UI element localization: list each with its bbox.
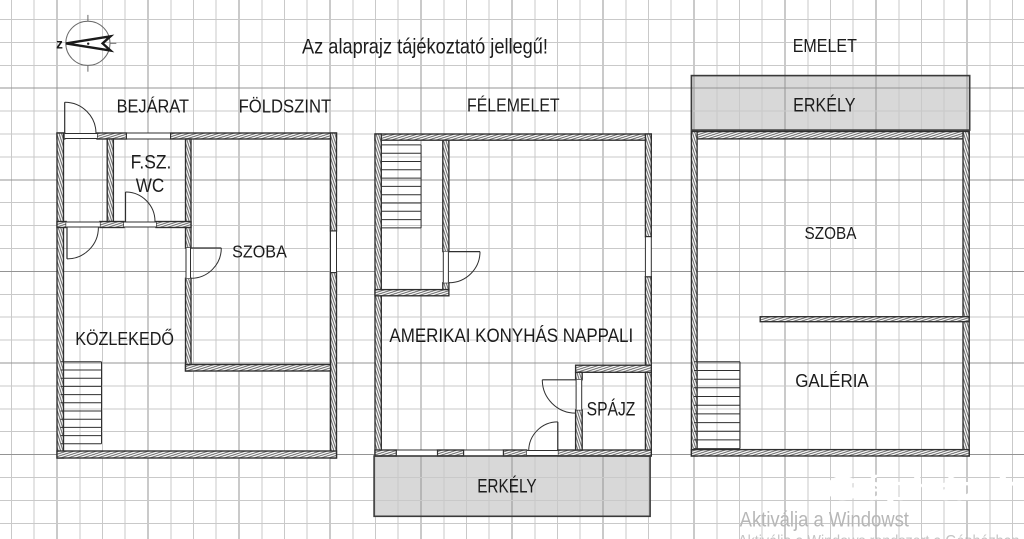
svg-text:EMELET: EMELET xyxy=(793,35,857,56)
svg-text:SZOBA: SZOBA xyxy=(232,242,287,262)
svg-text:FÉLEMELET: FÉLEMELET xyxy=(467,95,560,116)
svg-text:SPÁJZ: SPÁJZ xyxy=(587,399,636,420)
svg-text:ERKÉLY: ERKÉLY xyxy=(793,94,855,117)
svg-text:Gépház hu: Gépház hu xyxy=(826,470,1024,508)
svg-text:z: z xyxy=(56,36,63,51)
svg-text:Aktiválja a Windowst: Aktiválja a Windowst xyxy=(740,508,909,532)
svg-text:Aktiválja a Windows rendszert: Aktiválja a Windows rendszert a Gépházba… xyxy=(738,533,1020,539)
svg-text:BEJÁRAT: BEJÁRAT xyxy=(117,95,189,116)
svg-text:AMERIKAI KONYHÁS NAPPALI: AMERIKAI KONYHÁS NAPPALI xyxy=(389,326,633,347)
svg-text:ERKÉLY: ERKÉLY xyxy=(477,475,536,498)
svg-text:Az alaprajz tájékoztató jelleg: Az alaprajz tájékoztató jellegű! xyxy=(302,36,548,59)
svg-text:SZOBA: SZOBA xyxy=(805,223,857,243)
svg-text:GALÉRIA: GALÉRIA xyxy=(795,370,869,391)
svg-text:FÖLDSZINT: FÖLDSZINT xyxy=(239,95,332,116)
svg-text:F.SZ.: F.SZ. xyxy=(131,152,172,173)
svg-text:WC: WC xyxy=(136,176,165,197)
svg-text:KÖZLEKEDŐ: KÖZLEKEDŐ xyxy=(75,328,174,349)
